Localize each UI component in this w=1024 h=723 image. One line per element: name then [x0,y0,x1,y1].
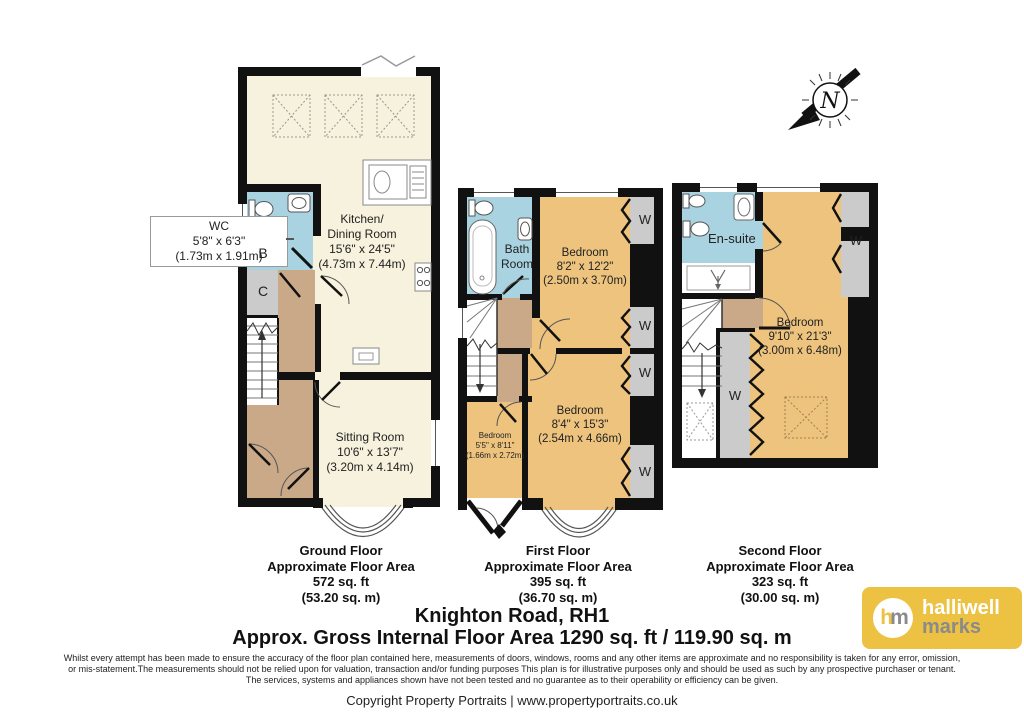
room-label-bedroom2: Bedroom 8'4" x 15'3" (2.54m x 4.66m) [518,404,642,446]
compass-icon: N [782,58,882,143]
wardrobe-marker: W [634,464,656,479]
floor-approx: Approximate Floor Area [458,559,658,575]
logo-name-bottom: marks [922,618,1000,637]
basin-icon [734,194,754,220]
wardrobe-marker: W [724,388,746,403]
halliwell-marks-logo: hm halliwell marks [862,587,1022,649]
floor-sqft: 395 sq. ft [458,574,658,590]
floor-sqm: (36.70 sq. m) [458,590,658,606]
logo-monogram-m: m [890,606,906,630]
bay-window [540,507,618,537]
second-floor-area-block: Second Floor Approximate Floor Area 323 … [680,543,880,605]
boiler-icon [353,348,379,364]
floorplan-page: N WC 5'8" x 6'3" (1.73m x 1.91m) Kitchen… [0,0,1024,723]
floor-name: First Floor [458,543,658,559]
room-label-bedroom4: Bedroom 9'10" x 21'3" (3.00m x 6.48m) [738,316,862,358]
wardrobe-marker: W [634,318,656,333]
wardrobe [630,197,654,498]
floor-sqft: 323 sq. ft [680,574,880,590]
ground-floor-area-block: Ground Floor Approximate Floor Area 572 … [241,543,441,605]
wardrobe-marker: W [845,233,867,248]
disclaimer-line-2: or mis-statement.The measurements should… [0,664,1024,675]
floor-sqm: (53.20 sq. m) [241,590,441,606]
first-floor-plan [456,186,666,540]
floor-approx: Approximate Floor Area [680,559,880,575]
callout-connector-line [286,238,294,240]
room-label-ensuite: En-suite [708,231,768,246]
toilet-icon [469,200,493,216]
bay-window [320,505,406,537]
floor-name: Second Floor [680,543,880,559]
disclaimer-line-1: Whilst every attempt has been made to en… [0,653,1024,664]
basin-icon [518,218,532,240]
toilet-icon [683,194,705,208]
compass-north-letter: N [819,89,840,114]
room-label-bedroom3: Bedroom 5'5" x 8'11" (1.66m x 2.72m) [460,431,530,461]
floor-sqm: (30.00 sq. m) [680,590,880,606]
room-label-bedroom1: Bedroom 8'2" x 12'2" (2.50m x 3.70m) [523,246,647,288]
room-label-kitchen: Kitchen/ Dining Room 15'6" x 24'5" (4.73… [282,212,442,272]
toilet-icon [683,221,709,237]
first-floor-area-block: First Floor Approximate Floor Area 395 s… [458,543,658,605]
wardrobe-marker: W [634,365,656,380]
wardrobe-marker: W [634,212,656,227]
floor-approx: Approximate Floor Area [241,559,441,575]
disclaimer-line-3: The services, systems and appliances sho… [0,675,1024,686]
floor-sqft: 572 sq. ft [241,574,441,590]
logo-monogram-icon: hm [873,598,913,638]
cupboard-c-marker: C [252,283,274,299]
basin-icon [288,194,310,212]
room-label-sitting: Sitting Room 10'6" x 13'7" (3.20m x 4.14… [300,430,440,475]
cupboard-b-marker: B [252,245,274,261]
shower-icon [687,266,750,290]
logo-monogram-h: h [880,606,890,630]
copyright-line: Copyright Property Portraits | www.prope… [0,693,1024,708]
sink-unit-icon [363,160,431,205]
floor-name: Ground Floor [241,543,441,559]
bifold-opening-zigzag [362,56,415,66]
